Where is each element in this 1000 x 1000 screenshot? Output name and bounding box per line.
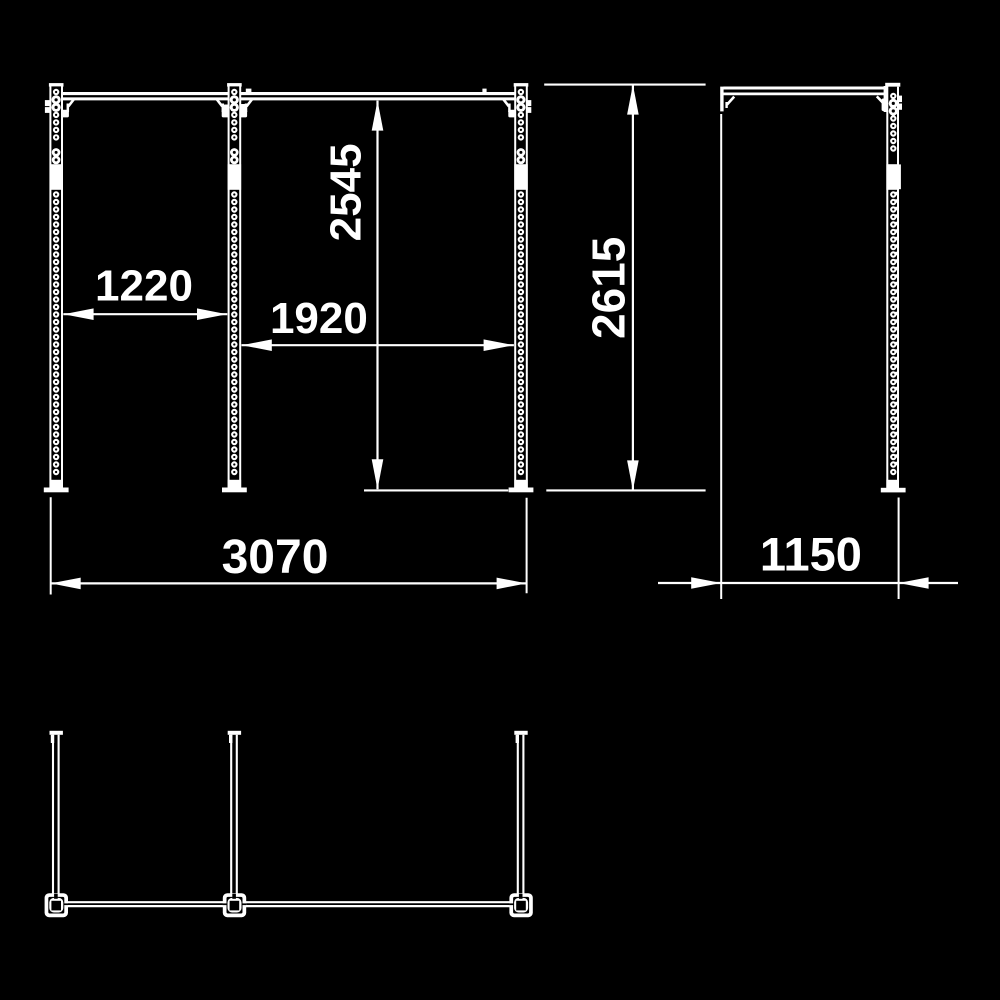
svg-text:1220: 1220 <box>95 262 193 311</box>
svg-text:1150: 1150 <box>760 528 862 581</box>
svg-text:1920: 1920 <box>270 294 368 343</box>
svg-text:2615: 2615 <box>583 237 635 339</box>
svg-text:2545: 2545 <box>321 143 370 241</box>
svg-text:3070: 3070 <box>222 531 329 584</box>
